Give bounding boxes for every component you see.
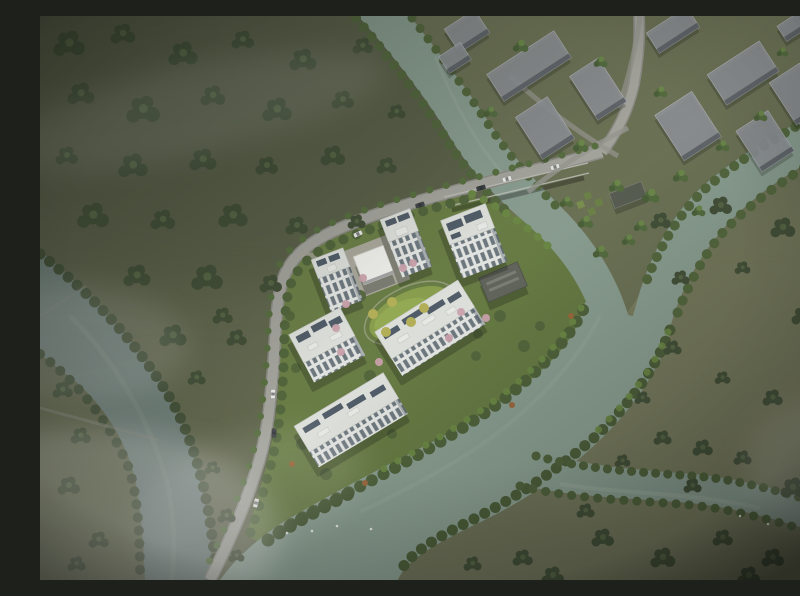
atmosphere <box>40 16 800 580</box>
scene-svg <box>40 16 800 580</box>
aerial-render-canvas <box>40 16 800 580</box>
vignette-overlay <box>40 16 800 580</box>
